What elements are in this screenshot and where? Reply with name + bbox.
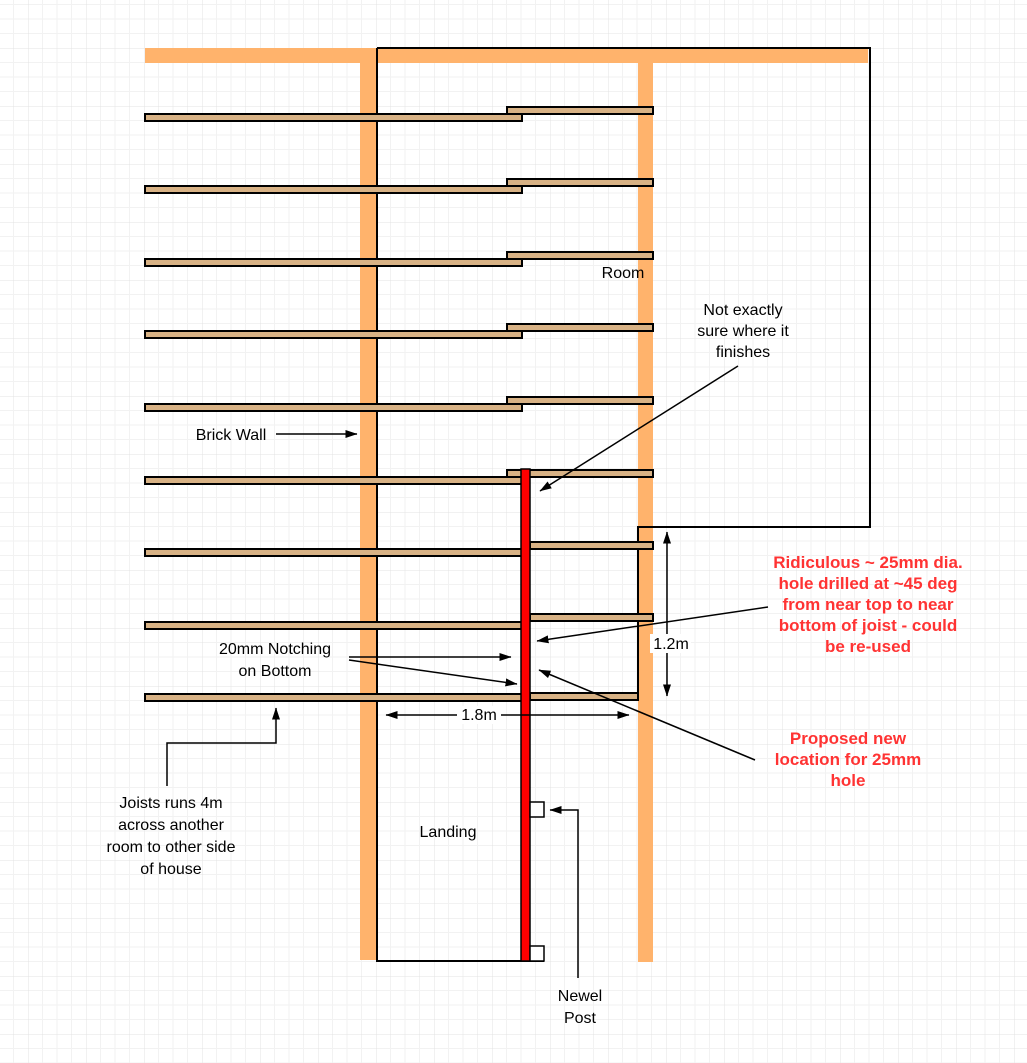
dimension-label-1-2m: 1.2m [653, 636, 689, 653]
joist-layout-diagram: 1.2m 1.8m Room Brick Wall Landing Not ex… [0, 0, 1027, 1063]
left-brick-wall [360, 48, 377, 960]
grid-background [0, 0, 1027, 1063]
joist-left-5 [145, 404, 522, 411]
joist-right-4 [507, 324, 653, 331]
joists-runs-line-3: room to other side [107, 839, 236, 856]
joist-left-4 [145, 331, 522, 338]
dimension-label-1-8m: 1.8m [461, 707, 497, 724]
newel-post-line-1: Newel [558, 988, 602, 1005]
joist-right-2 [507, 179, 653, 186]
joist-left-3 [145, 259, 522, 266]
newel-post-top [530, 802, 544, 817]
notching-line-2: on Bottom [239, 663, 312, 680]
ridiculous-line-4: bottom of joist - could [779, 616, 957, 635]
joist-left-8 [145, 622, 522, 629]
joist-right-9 [530, 693, 638, 700]
ridiculous-line-1: Ridiculous ~ 25mm dia. [773, 553, 962, 572]
joist-right-7 [530, 542, 653, 549]
not-exactly-line-3: finishes [716, 344, 770, 361]
brick-wall-label: Brick Wall [196, 427, 267, 444]
diagram-canvas: 1.2m 1.8m Room Brick Wall Landing Not ex… [0, 0, 1027, 1063]
landing-label: Landing [420, 824, 477, 841]
room-label: Room [602, 265, 645, 282]
ridiculous-line-5: be re-used [825, 637, 911, 656]
joist-right-8 [530, 614, 653, 621]
joist-right-3 [507, 252, 653, 259]
joist-left-1 [145, 114, 522, 121]
joist-left-7 [145, 549, 522, 556]
newel-post-bottom [530, 946, 544, 961]
top-wall [145, 48, 868, 63]
notching-line-1: 20mm Notching [219, 641, 331, 658]
ridiculous-line-3: from near top to near [783, 595, 954, 614]
not-exactly-line-1: Not exactly [703, 302, 782, 319]
joist-left-9 [145, 694, 522, 701]
joists-runs-line-4: of house [140, 861, 201, 878]
right-brick-wall [638, 63, 653, 962]
joist-right-1 [507, 107, 653, 114]
proposed-line-2: location for 25mm [775, 750, 921, 769]
joist-left-2 [145, 186, 522, 193]
not-exactly-line-2: sure where it [697, 323, 789, 340]
proposed-line-3: hole [831, 771, 866, 790]
newel-post-line-2: Post [564, 1010, 597, 1027]
joist-left-6 [145, 477, 522, 484]
ridiculous-line-2: hole drilled at ~45 deg [778, 574, 957, 593]
joist-right-5 [507, 397, 653, 404]
joists-runs-line-2: across another [118, 817, 225, 834]
proposed-line-1: Proposed new [790, 729, 907, 748]
joists-runs-line-1: Joists runs 4m [119, 795, 222, 812]
